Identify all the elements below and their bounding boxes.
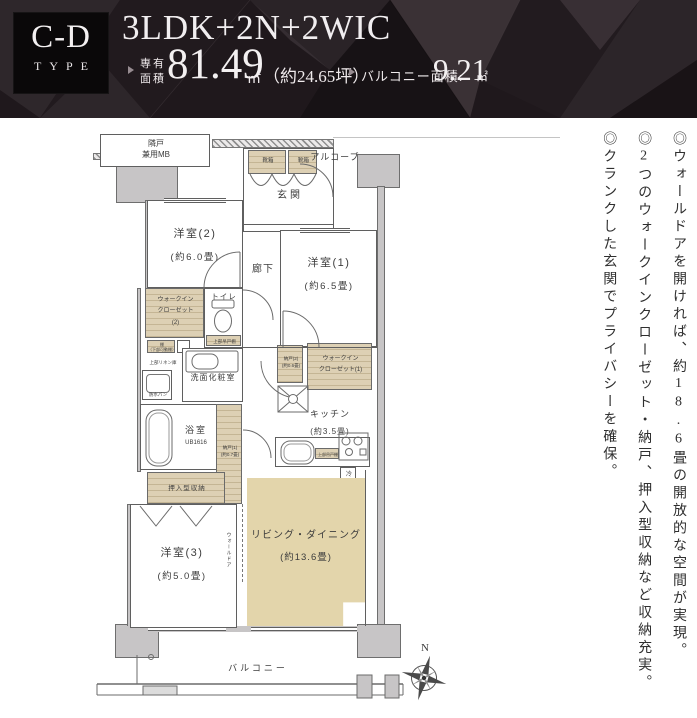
exclusive-area-label: 専有 面積 [140,57,166,87]
shoe-cabinet: 靴箱 [248,150,286,174]
laundry-pan: 防水パン [142,370,172,400]
wic2-label: クローゼット [146,306,205,317]
meter-box-label: 兼用MB [101,149,211,160]
wic1-label: ウォークイン [308,354,373,365]
partition-line [243,347,377,348]
washroom-label: 洗面化粧室 [186,372,240,384]
meter-box: 隣戸 兼用MB [100,134,210,167]
type-badge-word: TYPE [22,59,108,74]
storage2-label: 納戸(2) [275,356,307,363]
window [164,198,226,203]
hanging-cupboard-label: 上部吊戸棚 [313,452,343,458]
shelf-label: （下部可動棚） [142,347,182,352]
shelf-unit: 棚 （下部可動棚） [147,340,175,353]
living-dining-name: リビング・ダイニング [250,528,362,543]
wall-door-track [242,504,243,582]
room-western1-name: 洋室(1) [285,255,373,272]
meter-box-label: 隣戸 [101,138,211,149]
linen-label: 上部リネン庫 [143,360,183,367]
room-western3-size: (約5.0畳) [132,570,232,584]
toilet-shelf: 上部吊戸棚 [206,335,241,346]
structural-column [357,154,400,188]
exclusive-area-unit: ㎡ [247,68,261,88]
alcove-label: アルコーブ [310,151,360,165]
entrance-label: 玄関 [270,188,310,203]
balcony-label: バルコニー [218,662,298,676]
oshiire-label: 押入型収納 [148,484,226,494]
walk-in-closet-2: ウォークイン クローゼット (2) [145,288,204,338]
shoe-cabinet-label: 靴箱 [249,157,287,165]
hanging-cupboard: 上部吊戸棚 [315,448,339,459]
laundry-pan-inner [146,374,170,393]
balcony-area-unit: ㎡ [476,68,488,85]
toilet-shelf-label: 上部吊戸棚 [207,339,242,346]
type-badge: C-D TYPE [13,12,109,94]
balcony-window [251,627,357,631]
site-boundary-line [333,137,560,138]
type-badge-code: C-D [14,19,108,56]
wic2-label: ウォークイン [146,295,205,306]
living-east-line [365,470,366,626]
compass-north-label: N [417,640,433,657]
wic1-label: クローゼット(1) [308,365,373,376]
outer-wall [212,139,334,148]
storage1-label: 納戸(1) [215,445,245,452]
toilet-label: トイレ [206,291,242,302]
kitchen-size-label: (約3.5畳) [299,426,361,438]
window [300,228,350,233]
storage-2: 納戸(2) (約0.6畳) [277,345,303,383]
floor-plan: 隣戸 兼用MB 靴箱 靴箱 アルコーブ 玄関 洋室(2) (約6.0畳) 廊下 … [0,0,697,718]
kitchen-label: キッチン [299,408,361,422]
room-western2-name: 洋室(2) [150,226,240,243]
wic2-label: (2) [146,318,205,329]
triangle-bullet-icon [349,68,355,76]
room-western3-name: 洋室(3) [132,545,232,562]
window [148,627,226,631]
entrance-step-line [243,224,334,225]
laundry-pan-label: 防水パン [143,392,173,399]
walk-in-closet-1: ウォークイン クローゼット(1) [307,343,372,390]
storage1-label: (約0.7畳) [215,452,245,459]
bathroom-ub-label: UB1616 [176,439,216,448]
wall-door-label: ウォールドア [224,520,232,580]
living-dining-size: (約13.6畳) [250,551,362,565]
bathroom-label: 浴室 [178,424,214,438]
east-outer-wall [377,186,385,632]
triangle-bullet-icon [128,66,134,74]
room-western2-size: (約6.0畳) [150,251,240,265]
corridor-label: 廊下 [246,262,280,277]
room-western1-size: (約6.5畳) [285,280,373,294]
oshiire-storage: 押入型収納 [147,472,225,504]
storage2-label: (約0.6畳) [275,363,307,370]
